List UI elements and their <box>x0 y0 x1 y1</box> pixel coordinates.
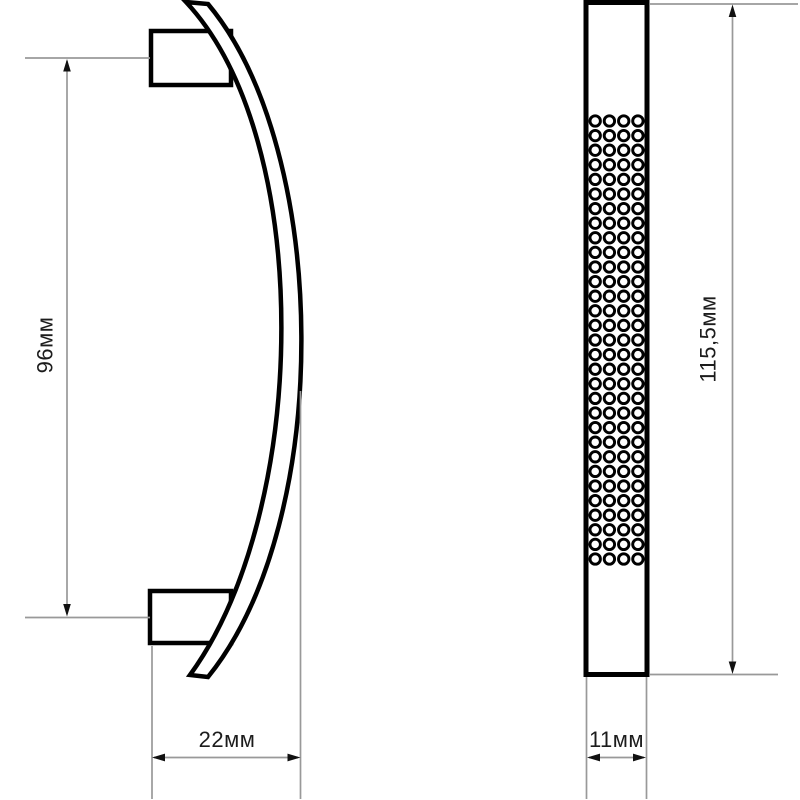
handle-side-view <box>150 2 301 677</box>
arrowhead-up-icon <box>63 59 71 72</box>
arrowhead-right-icon <box>633 754 646 762</box>
dimension-height-side: 96мм <box>25 58 150 618</box>
drawing-canvas: 96мм 22мм 115,5мм <box>0 0 800 800</box>
technical-drawing: 96мм 22мм 115,5мм <box>0 0 800 800</box>
dimension-width-front: 11мм <box>587 677 647 799</box>
arrowhead-right-icon <box>288 754 301 762</box>
arrowhead-left-icon <box>152 754 165 762</box>
handle-bow-profile <box>186 2 301 677</box>
handle-front-view <box>586 3 647 675</box>
arrowhead-left-icon <box>587 754 600 762</box>
dimension-label-96mm: 96мм <box>33 317 58 374</box>
dimension-label-11mm: 11мм <box>589 727 644 752</box>
dimension-label-22mm: 22мм <box>199 727 256 752</box>
dimension-height-front: 115,5мм <box>650 4 798 675</box>
dimension-label-115-5mm: 115,5мм <box>696 295 721 382</box>
arrowhead-down-icon <box>63 604 71 617</box>
arrowhead-down-icon <box>729 662 737 675</box>
handle-bar-face <box>586 3 647 675</box>
arrowhead-up-icon <box>729 5 737 18</box>
